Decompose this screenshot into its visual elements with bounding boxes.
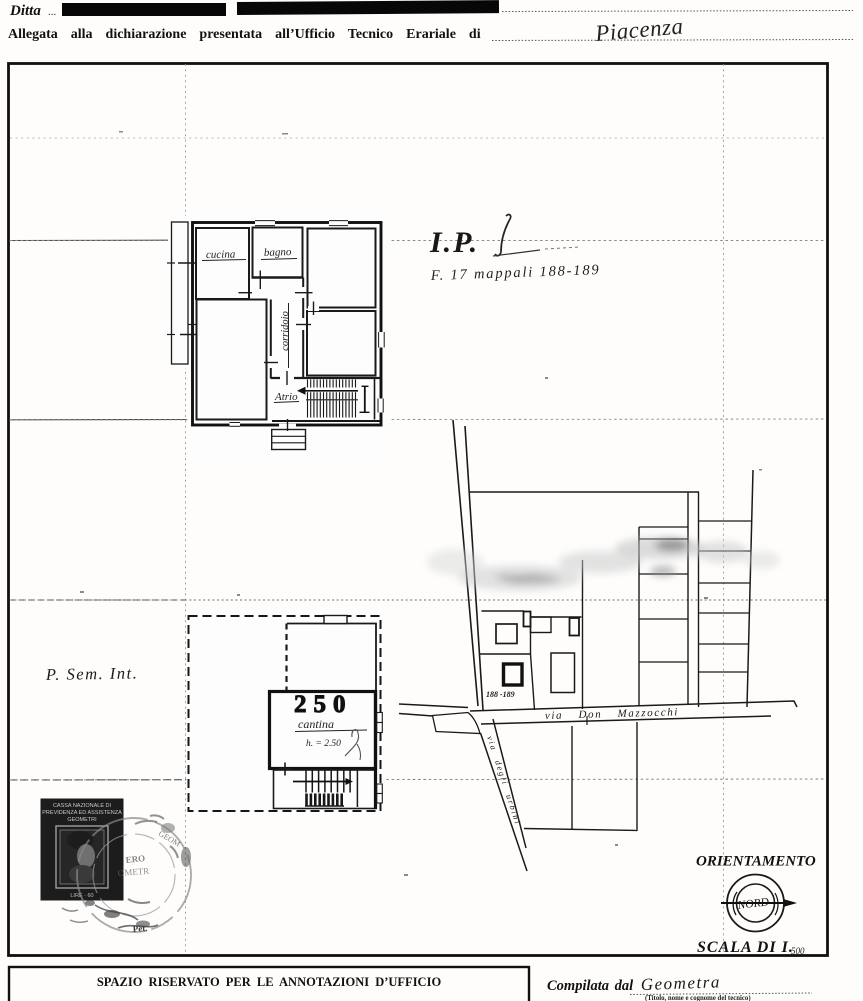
svg-text:Compilata dal: Compilata dal [547, 978, 633, 994]
svg-text:cantina: cantina [298, 717, 334, 731]
svg-text:corridoio: corridoio [280, 311, 291, 351]
svg-text:h. = 2.50: h. = 2.50 [306, 739, 341, 749]
svg-text:OMETR: OMETR [117, 866, 149, 878]
svg-text:bagno: bagno [264, 246, 292, 259]
svg-text:...: ... [48, 6, 57, 18]
svg-text:CASSA NAZIONALE DI: CASSA NAZIONALE DI [53, 803, 112, 809]
svg-text:PREVIDENZA ED ASSISTENZA: PREVIDENZA ED ASSISTENZA [42, 810, 122, 816]
svg-text:ERO: ERO [125, 853, 145, 865]
svg-text:GEOMETRI: GEOMETRI [67, 817, 97, 823]
svg-text:Geometra: Geometra [640, 972, 721, 994]
svg-text:500: 500 [791, 946, 805, 956]
svg-text:Ditta: Ditta [9, 3, 41, 19]
svg-text:I.P.: I.P. [429, 226, 479, 259]
svg-text:NORD: NORD [736, 896, 770, 912]
svg-text:188 -189: 188 -189 [486, 690, 515, 699]
svg-text:250: 250 [294, 691, 353, 718]
svg-text:SCALA DI I.: SCALA DI I. [697, 939, 794, 956]
svg-text:via degli urbini: via degli urbini [485, 735, 523, 827]
svg-text:P. Sem. Int.: P. Sem. Int. [45, 663, 139, 684]
svg-text:(Titolo, nome e cognome del te: (Titolo, nome e cognome del tecnico) [645, 995, 751, 1001]
svg-text:F. 17 mappali 188-189: F. 17 mappali 188-189 [430, 262, 601, 284]
svg-text:ORIENTAMENTO: ORIENTAMENTO [696, 854, 816, 870]
svg-text:Allegata alla dichiarazione pr: Allegata alla dichiarazione presentata a… [8, 27, 481, 42]
svg-text:cucina: cucina [206, 248, 236, 261]
svg-text:SPAZIO RISERVATO PER LE ANNOTA: SPAZIO RISERVATO PER LE ANNOTAZIONI D’UF… [97, 975, 442, 989]
svg-text:Piacenza: Piacenza [593, 13, 684, 46]
